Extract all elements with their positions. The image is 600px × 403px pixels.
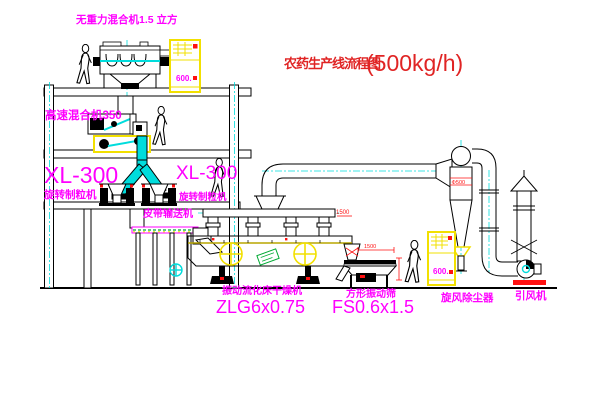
- indicator-light: [448, 236, 452, 240]
- label-sieve-model: FS0.6x1.5: [332, 297, 414, 317]
- sieve-motor: [356, 273, 376, 282]
- zero-gravity-mixer: [93, 42, 170, 89]
- label-granulator-right-name: 旋转制粒机: [178, 191, 227, 203]
- cyclone-outlet-ball: [452, 147, 471, 166]
- indicator-light: [193, 44, 198, 49]
- label-belt-conveyor: 皮带输送机: [142, 207, 193, 220]
- indicator-light: [193, 76, 197, 80]
- dryer-dimension: 1500: [336, 210, 350, 216]
- induced-draft-fan: [513, 260, 546, 285]
- high-speed-mixer: [88, 96, 150, 162]
- dryer-supports: [210, 266, 320, 284]
- cyclone-diameter-dim: Φ500: [452, 180, 466, 186]
- worker-on-roof: [77, 44, 91, 83]
- chimney-stack: [511, 170, 537, 261]
- vibrating-sieve: 1500: [336, 244, 402, 287]
- cabinet-ground-marking: 600.: [433, 267, 449, 276]
- worker-ground: [405, 240, 420, 282]
- control-cabinet-ground: 600.: [428, 232, 455, 285]
- label-high-speed-mixer: 高速混合机350: [45, 108, 122, 122]
- mixer-valve: [121, 83, 139, 89]
- label-cyclone-name: 旋风除尘器: [440, 291, 494, 304]
- roof-slab: [44, 88, 251, 96]
- label-top-mixer: 无重力混合机1.5 立方: [75, 13, 178, 26]
- diagram-title: 农药生产线流程图 (500kg/h): [283, 50, 463, 76]
- label-granulator-left-model: XL-300: [44, 162, 118, 188]
- label-dryer-model: ZLG6x0.75: [216, 297, 305, 317]
- sieve-dimension: 1500: [364, 244, 376, 250]
- granulator-discharge-chute: [130, 209, 144, 228]
- granulator-right: [141, 184, 177, 206]
- cad-process-flow-diagram: 600.: [0, 0, 600, 403]
- sieve-discharge-spout: [336, 266, 350, 281]
- label-granulator-left-name: 旋转制粒机: [43, 188, 97, 201]
- mid-column: [84, 209, 91, 288]
- label-dryer-name: 振动流化床干燥机: [222, 284, 302, 297]
- exhaust-manifold: [203, 209, 335, 217]
- fan-base: [513, 280, 546, 285]
- fluid-bed-dryer: [170, 209, 352, 284]
- cabinet-top-marking: 600.: [176, 74, 192, 83]
- worker-floor2: [153, 106, 167, 144]
- cyclone-to-fan-pipe: [472, 149, 518, 276]
- exhaust-duct: [254, 159, 452, 209]
- label-fan-name: 引风机: [515, 289, 547, 302]
- dryer-dim: 1500: [336, 210, 352, 216]
- indicator-light: [449, 270, 453, 274]
- discharge-pipe: [137, 136, 147, 162]
- name-plate-tag: [257, 249, 279, 265]
- title-capacity: (500kg/h): [366, 50, 463, 76]
- diagram-canvas: 600.: [0, 0, 600, 403]
- control-cabinet-top: 600.: [170, 40, 200, 92]
- label-granulator-right-model: XL-300: [176, 163, 237, 184]
